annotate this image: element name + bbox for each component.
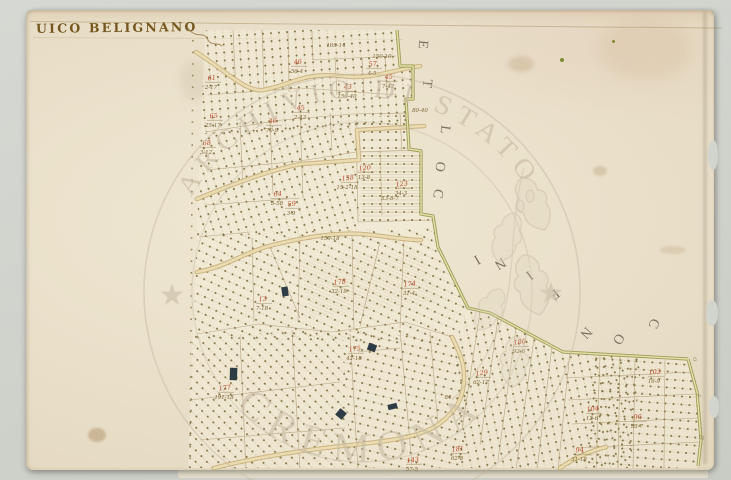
parcel-area: 12-6 [586,416,599,422]
parcel-number: 158 [341,173,354,182]
parcel-number: 46 [292,58,302,67]
parcel-area: 32-19 [331,289,347,295]
boundary-letter: N [577,324,595,342]
parcel-number: 59 [287,200,296,209]
parcel-number: 104 [586,404,599,413]
parcel-area: 7-18 [256,306,269,312]
area-note: 169-14 [326,43,346,49]
deckle-notch [708,140,718,170]
deckle-notch [709,396,719,418]
parcel-number: 103 [648,367,661,376]
parcel-area: 31-18 [571,457,587,463]
boundary-letter: C [645,316,662,330]
parcel-area: 16-9 [648,379,661,385]
parcel-area: 57-5 [406,467,419,473]
parcel-area: 2-17 [204,85,218,91]
parcel-number: 64 [273,190,282,199]
map-drawing: 612-174656-4574-5457-4243150-406525-1746… [0,0,731,480]
area-note: 53-8-7 [381,196,399,202]
parcel-number: 120 [358,163,371,172]
area-note: 150-18 [320,236,340,242]
parcel-area: 70-9 [266,128,279,134]
parcel-area: 3-9 [287,211,296,217]
watermark-star-left: ★ [159,278,186,313]
parcel-number: 96 [633,413,642,422]
boundary-letter: E [415,39,431,49]
parcel-number: 94 [575,446,584,455]
building-symbol [230,368,237,380]
parcel-number: 177 [218,383,232,392]
parcel-area: 53-7 [631,424,644,430]
boundary-letter: L [436,124,452,135]
parcel-area: 31-4 [403,291,416,297]
boundary-letter: O [609,331,627,347]
parcel-number: 175 [348,344,361,353]
parcel-area: 62-8 [451,456,464,462]
parcel-number: 123 [395,179,408,188]
parcel-area: 62-17 [473,380,489,386]
parcel-number: 174 [403,279,416,288]
parcel-area: 42-18 [345,356,362,362]
deckle-notch [706,300,718,326]
parcel-area: 56-4 [291,69,304,75]
parcel-area: 15-2-18 [336,185,358,191]
boundary-letter: O [431,160,448,173]
parcel-area: 5-58 [271,201,284,207]
parcel-number: 13 [258,295,267,304]
boundary-letter: C [429,188,445,200]
boundary-letter: I [471,251,483,266]
parcel-area: 13-8 [358,175,371,181]
scanned-map-page: UICO BELIGNANO [0,0,731,480]
parcel-number: 61 [207,74,216,83]
parcel-number: 65 [209,112,218,121]
parcel-number: 178 [333,277,346,286]
area-note: 150-10 [372,54,392,60]
building-symbol [281,287,288,297]
edge-mark: o [691,357,700,363]
parcel-area: 2-43 [293,115,307,121]
